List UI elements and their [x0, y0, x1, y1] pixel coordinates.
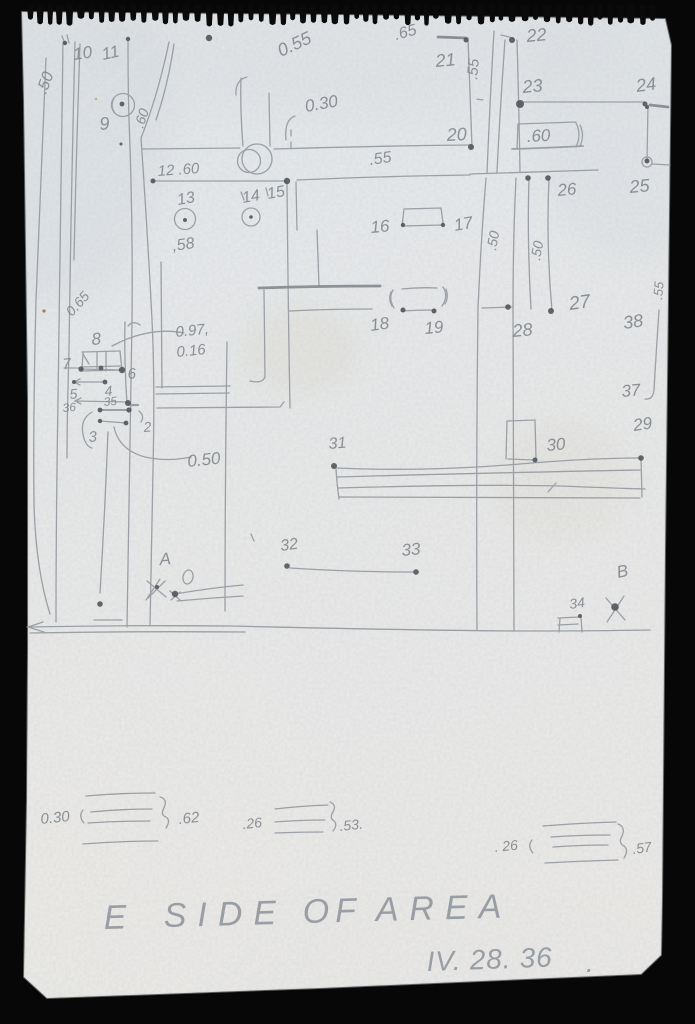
- svg-text:28: 28: [511, 319, 534, 341]
- svg-text:IV. 28. 36: IV. 28. 36: [426, 942, 553, 977]
- svg-text:0.97,: 0.97,: [175, 321, 210, 341]
- svg-text:0.30: 0.30: [40, 808, 71, 828]
- svg-text:36: 36: [62, 400, 77, 415]
- svg-text:18: 18: [369, 313, 391, 335]
- svg-text:10: 10: [72, 42, 94, 64]
- svg-text:A: A: [158, 549, 172, 569]
- svg-text:.53.: .53.: [339, 816, 364, 834]
- svg-text:0.50: 0.50: [186, 449, 221, 471]
- svg-text:19: 19: [424, 317, 445, 338]
- svg-text:32: 32: [279, 536, 299, 555]
- svg-text:.55: .55: [464, 57, 483, 80]
- svg-text:29: 29: [631, 413, 654, 435]
- svg-text:26: 26: [556, 179, 578, 200]
- svg-text:21: 21: [434, 49, 457, 71]
- svg-text:OF: OF: [302, 891, 362, 931]
- svg-text:30: 30: [546, 434, 567, 455]
- svg-text:22: 22: [525, 24, 548, 46]
- svg-text:.55: .55: [650, 280, 667, 300]
- svg-text:38: 38: [622, 310, 645, 333]
- svg-text:.60: .60: [526, 126, 551, 146]
- svg-text:. 26: . 26: [494, 837, 519, 855]
- svg-text:.57: .57: [631, 838, 654, 857]
- svg-text:31: 31: [328, 434, 347, 452]
- svg-text:.50: .50: [527, 239, 546, 261]
- svg-text:14: 14: [241, 187, 262, 207]
- svg-text:17: 17: [452, 213, 474, 235]
- svg-text:2: 2: [142, 418, 152, 435]
- svg-text:.: .: [586, 947, 594, 978]
- svg-text:E: E: [103, 898, 139, 937]
- svg-text:24: 24: [634, 73, 658, 96]
- svg-text:33: 33: [401, 539, 422, 560]
- svg-text:16: 16: [370, 216, 391, 237]
- svg-text:13: 13: [176, 189, 197, 209]
- svg-text:20: 20: [445, 124, 467, 145]
- svg-text:37: 37: [621, 380, 642, 401]
- svg-text:0.16: 0.16: [176, 341, 207, 361]
- svg-text:AREA: AREA: [373, 887, 513, 929]
- svg-text:.55: .55: [368, 149, 392, 169]
- svg-text:35: 35: [103, 394, 118, 409]
- svg-text:15: 15: [266, 183, 287, 203]
- svg-text:9: 9: [99, 113, 111, 134]
- svg-text:27: 27: [567, 291, 593, 315]
- svg-text:12 .60: 12 .60: [157, 160, 200, 180]
- svg-text:.26: .26: [242, 814, 263, 832]
- svg-text:25: 25: [628, 175, 652, 197]
- svg-text:,58: ,58: [171, 235, 195, 255]
- svg-text:.50: .50: [483, 229, 502, 251]
- svg-text:SIDE: SIDE: [163, 894, 287, 935]
- svg-text:34: 34: [568, 594, 586, 612]
- svg-text:.62: .62: [178, 809, 201, 828]
- svg-text:23: 23: [521, 75, 544, 97]
